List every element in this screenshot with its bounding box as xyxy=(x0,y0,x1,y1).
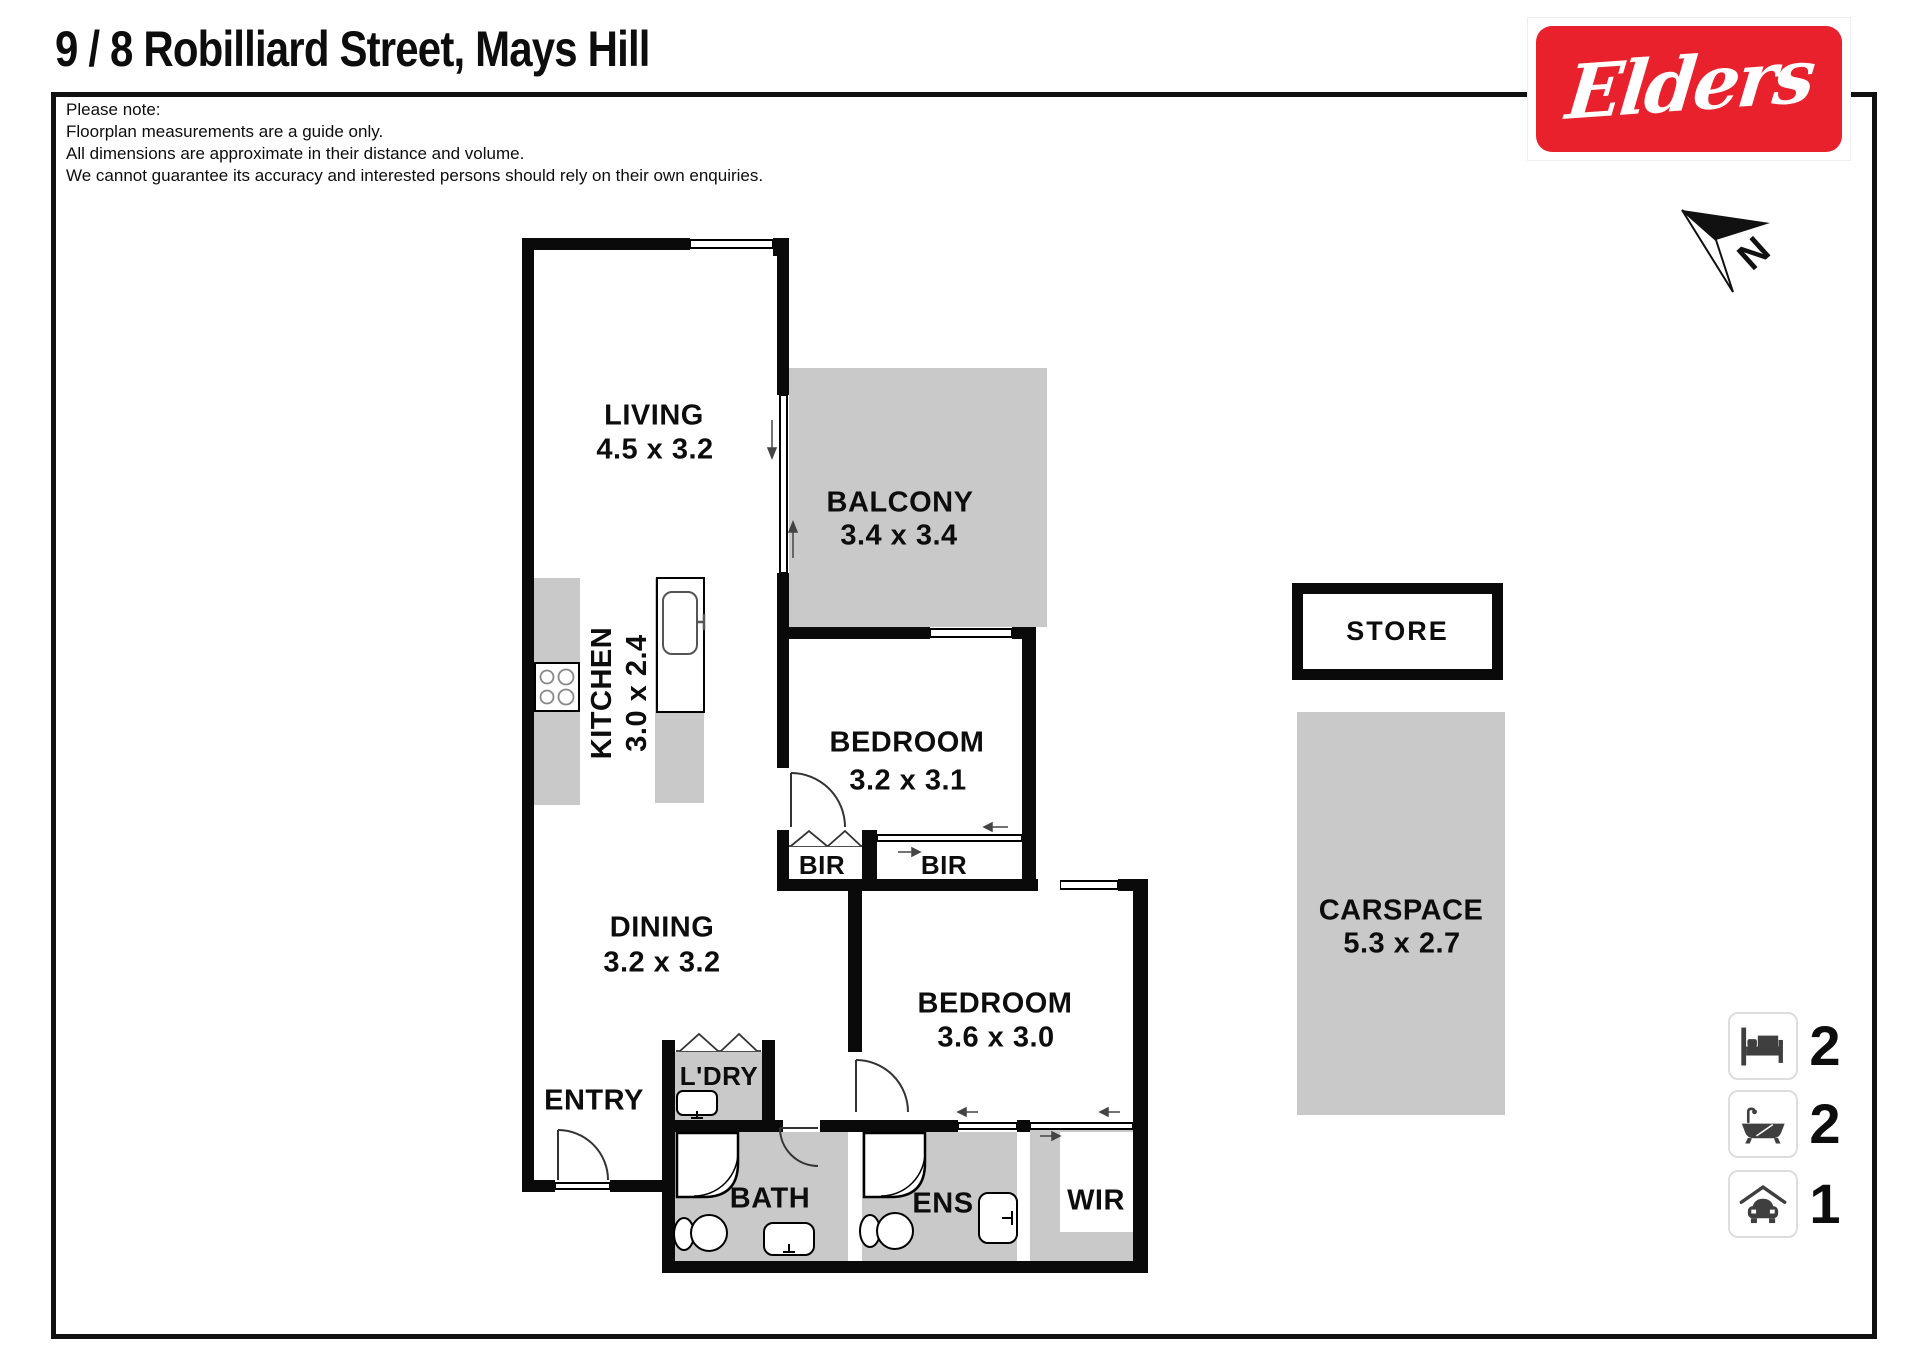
car-icon xyxy=(1737,1182,1789,1226)
room-label-laundry: L'DRY xyxy=(680,1063,759,1089)
wall xyxy=(848,891,862,1052)
room-dims-living: 4.5 x 3.2 xyxy=(596,436,713,465)
closet-label-bir2: BIR xyxy=(921,852,967,878)
wall xyxy=(522,238,534,1192)
page-title: 9 / 8 Robilliard Street, Mays Hill xyxy=(55,24,763,74)
room-label-entry: ENTRY xyxy=(544,1087,644,1116)
wall xyxy=(762,1040,775,1122)
bathroom-count: 2 xyxy=(1800,1096,1850,1152)
wall xyxy=(1022,627,1036,891)
disclaimer-line: We cannot guarantee its accuracy and int… xyxy=(66,165,763,187)
room-label-living: LIVING xyxy=(604,402,704,431)
kitchen-name: KITCHEN xyxy=(585,627,620,759)
sliding-door xyxy=(1030,1122,1133,1130)
elders-logo: Elders xyxy=(1536,26,1842,152)
room-label-carspace: CARSPACE xyxy=(1319,897,1484,926)
disclaimer-line: Please note: xyxy=(66,99,763,121)
room-label-kitchen: KITCHEN 3.0 x 2.4 xyxy=(585,627,655,759)
closet-label-bir1: BIR xyxy=(799,852,845,878)
window xyxy=(930,628,1012,638)
room-dims-balcony: 3.4 x 3.4 xyxy=(840,522,957,551)
sliding-door xyxy=(779,395,788,573)
room-dims-carspace: 5.3 x 2.7 xyxy=(1343,930,1460,959)
window xyxy=(1060,880,1118,890)
window xyxy=(690,239,773,249)
room-label-wir: WIR xyxy=(1067,1187,1125,1216)
entry-door-threshold xyxy=(555,1182,610,1190)
wall xyxy=(777,252,789,395)
wall xyxy=(522,238,690,250)
carspace-count: 1 xyxy=(1800,1176,1850,1232)
bedroom-count: 2 xyxy=(1800,1018,1850,1074)
kitchen-dims: 3.0 x 2.4 xyxy=(620,627,655,759)
room-dims-dining: 3.2 x 3.2 xyxy=(603,949,720,978)
brand-logo-card: Elders xyxy=(1527,17,1851,161)
room-label-balcony: BALCONY xyxy=(827,489,974,518)
legend-bathrooms xyxy=(1728,1090,1798,1158)
room-label-store: STORE xyxy=(1346,616,1449,647)
room-label-dining: DINING xyxy=(610,914,715,943)
room-dims-bedroom1: 3.2 x 3.1 xyxy=(849,767,966,796)
wall xyxy=(1017,1120,1030,1132)
sliding-door xyxy=(958,1122,1017,1130)
wall xyxy=(662,1040,675,1273)
wall xyxy=(848,1120,958,1132)
disclaimer-line: Floorplan measurements are a guide only. xyxy=(66,121,763,143)
disclaimer-line: All dimensions are approximate in their … xyxy=(66,143,763,165)
floorplan-page: 9 / 8 Robilliard Street, Mays Hill Pleas… xyxy=(0,0,1920,1357)
sliding-door xyxy=(877,834,1022,842)
wall xyxy=(610,1180,675,1192)
disclaimer: Please note: Floorplan measurements are … xyxy=(66,99,763,187)
wir-floor xyxy=(1060,1132,1133,1232)
wall xyxy=(777,639,789,768)
bed-icon xyxy=(1737,1024,1789,1068)
wall xyxy=(820,1120,848,1132)
elders-logo-text: Elders xyxy=(1561,33,1816,145)
wall xyxy=(522,1180,555,1192)
room-label-ensuite: ENS xyxy=(912,1190,973,1219)
kitchen-counter xyxy=(534,578,580,805)
store-box: STORE xyxy=(1292,583,1503,680)
kitchen-island xyxy=(655,578,704,803)
wall xyxy=(777,627,930,639)
page-title-text: 9 / 8 Robilliard Street, Mays Hill xyxy=(55,24,650,74)
room-label-bedroom2: BEDROOM xyxy=(918,990,1073,1019)
legend-carspaces xyxy=(1728,1170,1798,1238)
wall xyxy=(1133,879,1148,1273)
legend-bedrooms xyxy=(1728,1012,1798,1080)
wall xyxy=(777,879,1038,891)
room-dims-bedroom2: 3.6 x 3.0 xyxy=(937,1024,1054,1053)
room-label-bath: BATH xyxy=(730,1185,810,1214)
room-label-bedroom1: BEDROOM xyxy=(830,729,985,758)
wall xyxy=(662,1261,1148,1273)
bath-icon xyxy=(1737,1102,1789,1146)
wall xyxy=(675,1120,783,1132)
